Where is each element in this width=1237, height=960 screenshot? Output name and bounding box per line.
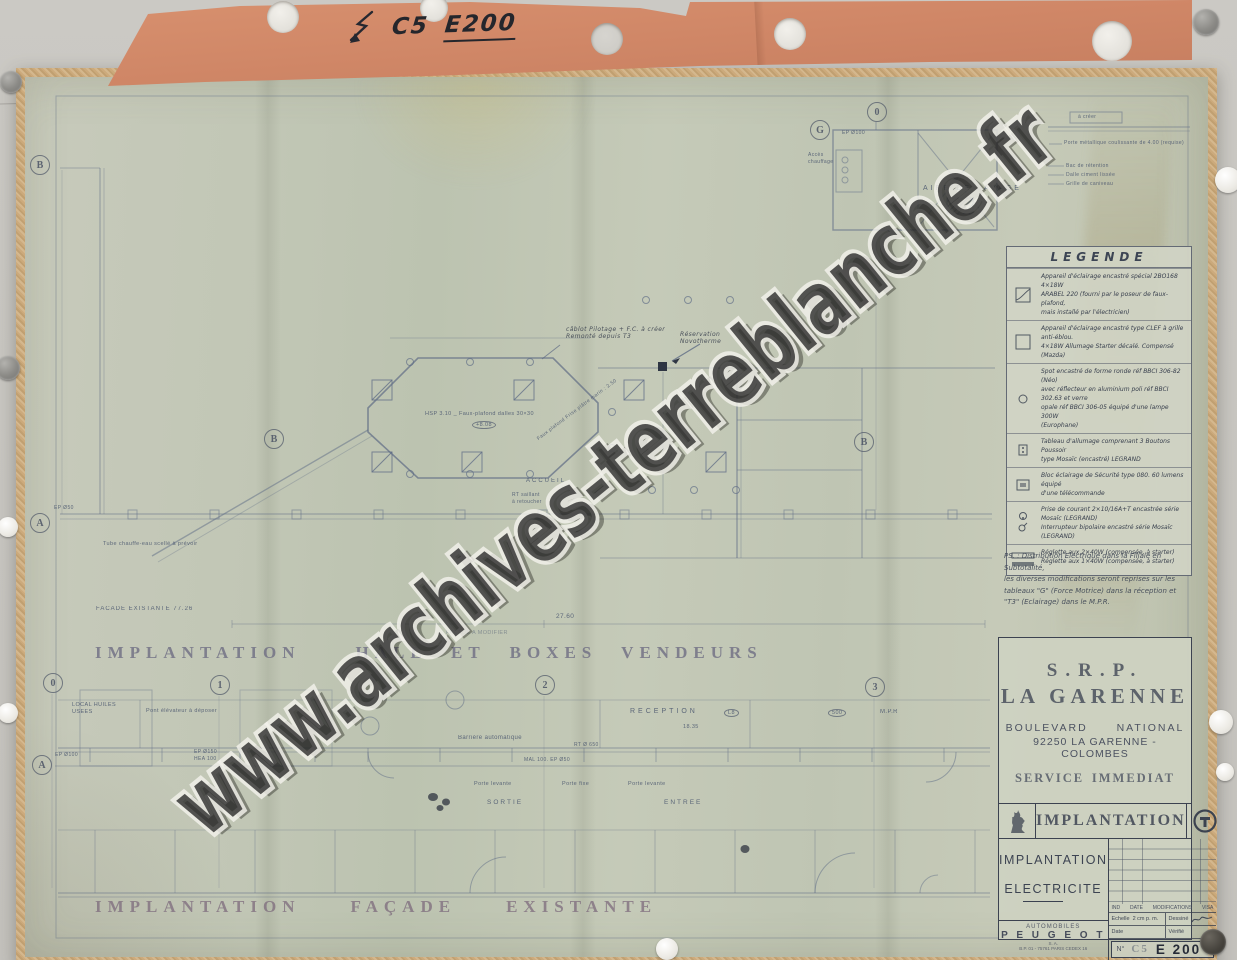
address-line2: 92250 LA GARENNE - COLOMBES <box>999 736 1191 760</box>
plan-label-porte-levante-1: Porte levante <box>474 781 512 787</box>
verifie-label: Vérifié <box>1169 929 1185 935</box>
white-pin <box>656 938 678 960</box>
axis-bubble-1: 1 <box>210 675 230 695</box>
magnet-disc <box>1193 9 1219 35</box>
plan-label-acces-chauffage: Accès chauffage <box>808 152 833 166</box>
subject-line1: IMPLANTATION <box>999 853 1108 867</box>
plan-label-reception: RECEPTION <box>630 708 698 715</box>
band-title: IMPLANTATION <box>1036 804 1186 838</box>
plan-label-accueil: ACCUEIL <box>526 478 566 484</box>
title-word: EXISTANTE <box>506 897 657 917</box>
maker-box: AUTOMOBILES P E U G E O T S. A. B.P. 01 … <box>999 920 1108 960</box>
axis-bubble-g: G <box>810 120 830 140</box>
col-visa: VISA <box>1202 905 1213 911</box>
plan-label-ep150: EP Ø150 HEA 100 <box>194 749 217 763</box>
echelle-label: Echelle <box>1112 916 1130 922</box>
note-grille-caniveau: Grille de caniveau <box>1066 181 1113 187</box>
title-word: IMPLANTATION <box>95 897 301 917</box>
paper-crease <box>255 77 281 957</box>
axis-bubble-a-bottom: A <box>32 755 52 775</box>
maker-peugeot: P E U G E O T <box>999 930 1108 941</box>
legend-row: Appareil d'éclairage encastré spécial 2B… <box>1007 268 1191 320</box>
magnet-disc-dark <box>1200 929 1226 955</box>
title-block-band: IMPLANTATION <box>999 804 1191 839</box>
plan-label-porte-levante-2: Porte levante <box>628 781 666 787</box>
drawing-number-box: N° C5 E 200 <box>1111 941 1215 958</box>
legend-row-text: Bloc éclairage de Sécurité type 080. 60 … <box>1039 468 1191 501</box>
recessed-special-luminaire-icon <box>1007 269 1039 320</box>
title-word: IMPLANTATION <box>95 643 301 663</box>
paper-crease <box>875 77 901 957</box>
title-implantation-facade: IMPLANTATION FAÇADE EXISTANTE <box>95 897 657 917</box>
title-word: HALL ET BOXES VENDEURS <box>356 643 763 663</box>
title-block: S.R.P. LA GARENNE BOULEVARD NATIONAL 922… <box>998 637 1192 940</box>
plan-label-ep100-bottom: EP Ø100 <box>55 752 78 758</box>
number-c5: C5 <box>1131 943 1148 955</box>
white-pin <box>1215 167 1237 193</box>
legend-row: Spot encastré de forme ronde réf BBCI 30… <box>1007 363 1191 433</box>
stamp-immediat: IMMEDIAT <box>1092 771 1175 786</box>
title-block-owner: S.R.P. LA GARENNE BOULEVARD NATIONAL 922… <box>999 660 1191 804</box>
axis-bubble-0-top: 0 <box>867 102 887 122</box>
plan-cote-808: +8.08 <box>472 421 496 429</box>
recessed-luminaire-icon <box>1007 321 1039 363</box>
legend-row: Tableau d'allumage comprenant 3 Boutons … <box>1007 433 1191 467</box>
white-pin <box>1209 710 1233 734</box>
legend-title: LEGENDE <box>1007 247 1191 268</box>
plan-label-rt-saillant: RT saillant à retoucher <box>512 492 542 506</box>
note-porte-metallique: Porte métallique coulissante de 4.00 (re… <box>1064 140 1184 146</box>
service-immediat-stamp: SERVICE IMMEDIAT <box>999 771 1191 786</box>
legend-row: Appareil d'éclairage encastré type CLEF … <box>1007 320 1191 363</box>
maker-address: B.P. 01 - 75761 PARIS CEDEX 16 <box>999 946 1108 951</box>
plan-note-reservation: Réservation Novotherme <box>680 331 721 345</box>
plan-label-barriere-automatique: Barrière automatique <box>458 735 522 741</box>
legend-row-text: Spot encastré de forme ronde réf BBCI 30… <box>1039 364 1191 433</box>
note-dalle-ciment: Dalle ciment lissée <box>1066 172 1115 178</box>
plan-label-sortie: SORTIE <box>487 799 523 806</box>
handwritten-arrow-icon <box>0 0 1237 70</box>
paper-crease <box>570 77 596 957</box>
plan-dim-2760: 27.60 <box>556 613 574 620</box>
handwritten-code: C5E200 <box>391 10 518 40</box>
legend-row-text: Appareil d'éclairage encastré type CLEF … <box>1039 321 1191 363</box>
title-block-subject: IMPLANTATION ELECTRICITE AUTOMOBILES P E… <box>999 839 1109 960</box>
plan-note-cablot: câblot Pilotage + F.C. à créer Remonté d… <box>566 326 665 340</box>
legend-row-text: Appareil d'éclairage encastré spécial 2B… <box>1039 269 1191 320</box>
socket-and-switch-icon <box>1007 502 1039 544</box>
title-word: FAÇADE <box>351 897 457 917</box>
code-number: E200 <box>443 10 518 43</box>
archival-drawing-photo: AIRE DE LAVAGE Accès chauffage EP Ø100 R… <box>0 0 1237 960</box>
magnet-disc <box>0 71 22 93</box>
ps-note: PS. : Distribution Electrique dans la Fi… <box>1004 551 1196 609</box>
talbot-logo-icon <box>1186 804 1223 838</box>
number-prefix: N° <box>1117 946 1125 953</box>
plan-label-pont-elevateur: Pont élévateur à déposer <box>146 708 217 714</box>
axis-bubble-b-left: B <box>30 155 50 175</box>
plan-label-ep100-top: EP Ø100 <box>842 130 865 136</box>
plan-label-mpr: M.P.R <box>880 709 898 715</box>
plan-label-aire-de-lavage: AIRE DE LAVAGE <box>923 185 1022 192</box>
plan-tag-l8: L8 <box>724 709 739 717</box>
plan-label-faux-plafond: HSP 3.10 _ Faux-plafond dalles 30×30 <box>425 411 534 417</box>
plan-label-entree: ENTREE <box>664 799 702 806</box>
stamp-service: SERVICE <box>1015 771 1084 786</box>
site-name: LA GARENNE <box>999 684 1191 709</box>
table-divider <box>1200 839 1201 904</box>
col-date: DATE <box>1130 905 1143 911</box>
modifications-header: IND DATE MODIFICATIONS VISA <box>1109 904 1217 914</box>
col-ind: IND <box>1112 905 1121 911</box>
legend-row-text: Tableau d'allumage comprenant 3 Boutons … <box>1039 434 1191 467</box>
axis-bubble-0: 0 <box>43 673 63 693</box>
plan-label-rt650: RT Ø 650 <box>574 742 599 748</box>
org-name: S.R.P. <box>999 660 1191 682</box>
code-prefix: C5 <box>391 13 431 40</box>
table-divider <box>1142 839 1143 904</box>
modifications-table <box>1109 839 1217 904</box>
echelle-value: 2 cm p. m. <box>1133 916 1159 922</box>
legend-panel: LEGENDE Appareil d'éclairage encastré sp… <box>1006 246 1192 576</box>
field-row-echelle-dessine: Echelle 2 cm p. m. Dessiné <box>1109 913 1217 926</box>
legend-row: Bloc éclairage de Sécurité type 080. 60 … <box>1007 467 1191 501</box>
legend-row-text: Prise de courant 2×10/16A+T encastrée sé… <box>1039 502 1191 544</box>
col-modifications: MODIFICATIONS <box>1153 905 1192 911</box>
number-e200: E 200 <box>1156 942 1201 957</box>
address-line1: BOULEVARD NATIONAL <box>999 722 1191 734</box>
paper-stain <box>345 77 605 197</box>
legend-row: Prise de courant 2×10/16A+T encastrée sé… <box>1007 501 1191 544</box>
note-header-a-creer: à créer <box>1078 114 1096 120</box>
peugeot-lion-logo-icon <box>999 804 1036 838</box>
axis-bubble-a-left: A <box>30 513 50 533</box>
emergency-lighting-block-icon <box>1007 468 1039 501</box>
plan-label-ep50: EP Ø50 <box>54 505 74 511</box>
subject-line2: ELECTRICITE <box>999 882 1108 896</box>
round-spot-icon <box>1007 364 1039 433</box>
plan-label-porte-fixe: Porte fixe <box>562 781 589 787</box>
title-block-body: IMPLANTATION ELECTRICITE AUTOMOBILES P E… <box>999 839 1191 960</box>
plan-label-facade-a-modifier: FACADE A MODIFIER <box>446 630 508 636</box>
axis-bubble-2: 2 <box>535 675 555 695</box>
dessine-label: Dessiné <box>1169 916 1189 922</box>
signature-squiggle <box>1191 915 1213 924</box>
plan-label-facade-existante-dim: FACADE EXISTANTE 77.26 <box>96 606 193 612</box>
plan-label-local-huiles: LOCAL HUILES USEES <box>72 702 116 717</box>
section-marker-b-left: B <box>264 429 284 449</box>
plan-label-tube: Tube chauffe-eau scellé à prévoir <box>103 541 198 547</box>
axis-bubble-3: 3 <box>865 677 885 697</box>
note-bac-retention: Bac de rétention <box>1066 163 1109 169</box>
title-implantation-hall: IMPLANTATION HALL ET BOXES VENDEURS <box>95 643 763 663</box>
white-pin <box>1216 763 1234 781</box>
date-label: Date <box>1112 929 1124 935</box>
push-button-panel-icon <box>1007 434 1039 467</box>
subject-underline <box>1023 901 1063 902</box>
table-divider <box>1122 839 1123 904</box>
section-marker-b-right: B <box>854 432 874 452</box>
plan-dim-1835: 18.35 <box>683 724 699 730</box>
plan-label-mal: MAL 100. EP Ø50 <box>524 757 570 763</box>
